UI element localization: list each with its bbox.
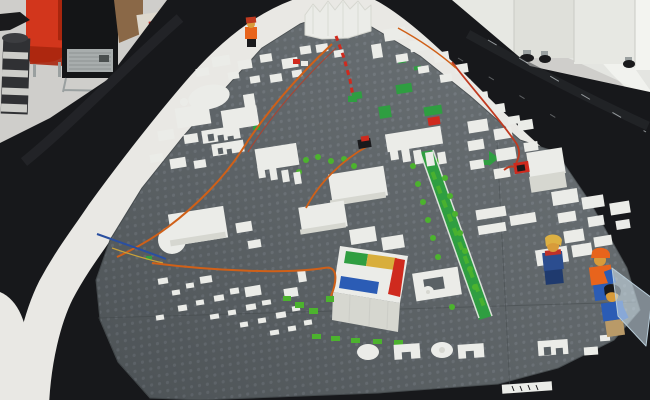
chimney xyxy=(180,98,188,106)
arch-opening xyxy=(218,148,224,155)
servo-piece xyxy=(301,61,308,66)
bush xyxy=(449,304,455,310)
bin-stripe xyxy=(1,104,27,113)
green-brick xyxy=(295,302,304,308)
green-brick xyxy=(394,340,403,345)
worker-vest xyxy=(245,27,257,39)
wire-connector xyxy=(326,296,334,302)
bush xyxy=(472,284,478,290)
chair-leg xyxy=(58,62,61,77)
scene-canvas xyxy=(0,0,650,400)
bin-stripe xyxy=(2,70,28,78)
green-brick xyxy=(331,336,340,341)
small-brick xyxy=(584,347,599,356)
bush xyxy=(457,230,463,236)
green-brick xyxy=(309,308,318,314)
arch-piece xyxy=(538,339,569,356)
office-cabinet xyxy=(574,0,635,64)
arch-opening xyxy=(217,135,224,143)
bush xyxy=(315,154,321,160)
green-plate xyxy=(378,105,392,119)
green-brick xyxy=(312,334,321,339)
bush xyxy=(467,266,473,272)
building xyxy=(299,45,311,55)
track-connector xyxy=(348,96,357,102)
minifig-legs xyxy=(605,319,625,337)
servo-piece xyxy=(293,59,300,64)
scene-root xyxy=(0,0,650,400)
arch-opening xyxy=(544,347,552,355)
speaker-logo xyxy=(99,55,109,62)
round-piece-center xyxy=(439,347,445,353)
zigzag-wall xyxy=(305,0,371,39)
arch-opening xyxy=(556,348,564,356)
bush xyxy=(303,157,309,163)
bush xyxy=(452,211,458,217)
bin-stripe xyxy=(3,52,28,60)
floor-gap xyxy=(635,0,650,70)
bush xyxy=(462,248,468,254)
arch-opening xyxy=(402,352,412,361)
bin-stripe xyxy=(2,88,29,96)
bush xyxy=(420,199,426,205)
bush xyxy=(430,235,436,241)
green-brick xyxy=(373,339,382,344)
bush xyxy=(415,181,421,187)
lego-city-photo xyxy=(0,0,650,400)
arch-opening xyxy=(466,351,475,360)
servo-core xyxy=(517,164,526,171)
green-brick xyxy=(483,160,490,165)
arch-opening xyxy=(207,134,214,142)
green-brick xyxy=(351,338,360,343)
bin-lid xyxy=(2,33,28,43)
arch-opening xyxy=(227,149,233,156)
worker-cap xyxy=(246,16,257,23)
bush xyxy=(442,175,448,181)
tower xyxy=(243,93,256,110)
bush xyxy=(351,163,357,169)
chair-leg xyxy=(33,64,36,77)
clock-center xyxy=(426,290,430,294)
green-brick xyxy=(283,296,291,301)
office-cabinet xyxy=(514,0,574,58)
bush xyxy=(425,217,431,223)
caster-wheel xyxy=(623,60,635,68)
bush xyxy=(328,158,334,164)
round-piece xyxy=(357,344,379,360)
bush xyxy=(435,254,441,260)
worker-legs xyxy=(247,38,256,47)
caster-wheel xyxy=(539,55,551,63)
bush xyxy=(447,193,453,199)
